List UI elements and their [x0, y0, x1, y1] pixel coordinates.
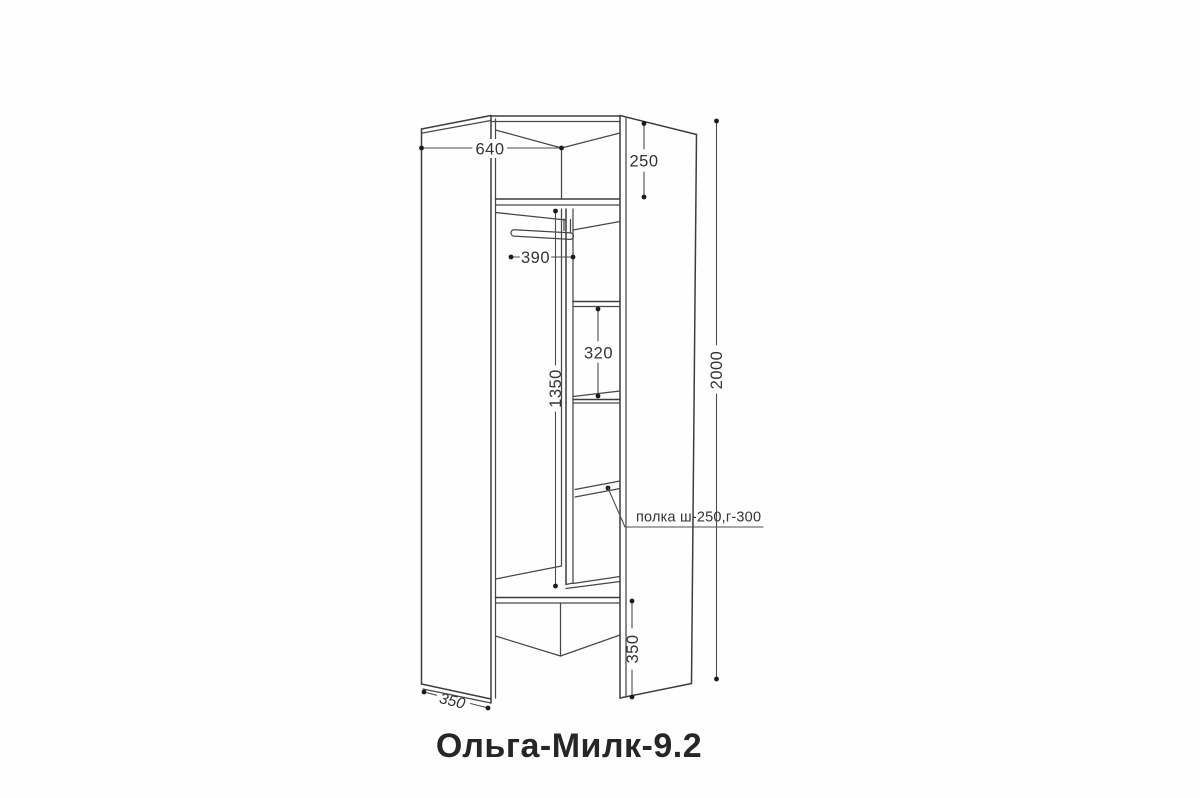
shelf-note: полка ш-250,г-300: [606, 486, 763, 527]
dimension-320-label: 320: [584, 345, 613, 363]
dimension-320: 320: [582, 307, 615, 399]
wardrobe-technical-drawing: 640 250 390 1350: [0, 0, 1200, 798]
dimension-annotations: 640 250 390 1350: [419, 119, 763, 713]
dimension-350-plinth: 350: [624, 599, 642, 700]
shelf-note-label: полка ш-250,г-300: [636, 510, 761, 526]
dimension-350-plinth-label: 350: [624, 634, 642, 663]
divider-panel: [566, 209, 573, 585]
dimension-640-label: 640: [475, 141, 504, 159]
left-door-panel: [422, 116, 496, 704]
dimension-2000: 2000: [708, 119, 726, 682]
top-corner-shelf: [496, 130, 621, 199]
dimension-250: 250: [629, 121, 658, 199]
dimension-2000-label: 2000: [708, 351, 726, 390]
dimension-640: 640: [419, 139, 564, 159]
upper-shelf: [496, 199, 621, 230]
dimension-250-label: 250: [629, 153, 658, 171]
drawing-canvas: 640 250 390 1350: [0, 0, 1200, 798]
bottom-shelf: [496, 598, 621, 657]
wardrobe-structure: [422, 116, 697, 704]
hanger-rod: [511, 219, 574, 240]
top-rail: [491, 116, 620, 122]
dimension-390-label: 390: [521, 249, 550, 267]
drawing-title: Ольга-Милк-9.2: [436, 727, 702, 765]
dimension-1350-label: 1350: [547, 369, 565, 408]
